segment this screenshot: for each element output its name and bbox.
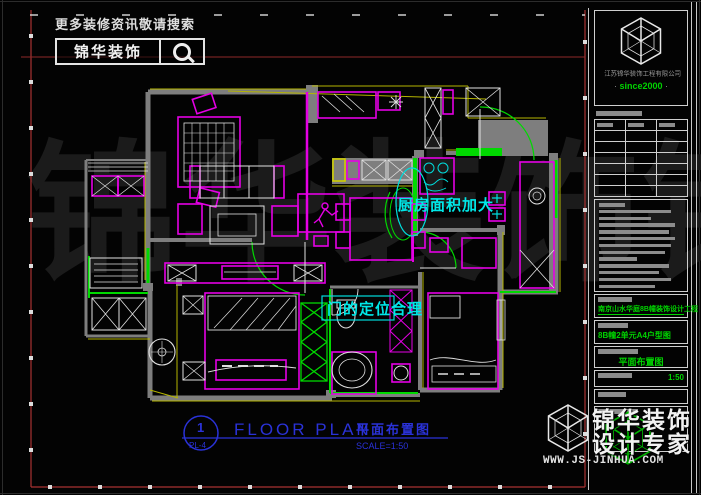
title-en: FLOOR PLAN bbox=[234, 420, 372, 439]
panel-edge-line bbox=[696, 2, 697, 493]
sofa-armrest bbox=[274, 166, 284, 198]
redacted-text-bar bbox=[599, 217, 651, 221]
bathtub bbox=[332, 352, 372, 388]
revision-cell bbox=[626, 142, 657, 153]
redacted-text-bar bbox=[599, 257, 637, 261]
dresser bbox=[183, 362, 205, 380]
redacted-text-bar bbox=[599, 285, 655, 289]
bed-bench bbox=[216, 360, 286, 380]
drawing-title: 1 PL-4 FLOOR PLAN 平面布置图 SCALE=1:50 bbox=[182, 416, 448, 451]
search-button[interactable] bbox=[161, 40, 203, 63]
ceiling-fan bbox=[389, 95, 403, 109]
redacted-text-bar bbox=[599, 264, 669, 268]
revision-cell bbox=[595, 164, 626, 175]
kitchen-sink bbox=[529, 188, 545, 204]
title-sheet: PL-4 bbox=[189, 441, 206, 450]
unit-field-box: 8B幢2单元A4户型图 bbox=[594, 320, 688, 344]
revision-cell bbox=[626, 131, 657, 142]
notes-box bbox=[594, 199, 688, 292]
master-bed bbox=[205, 293, 299, 389]
footer-brand: 锦华装饰 设计专家 bbox=[592, 409, 696, 457]
search-widget: 更多装修资讯敬请搜索 锦华装饰 bbox=[55, 14, 205, 65]
revision-cell bbox=[626, 164, 657, 175]
revision-cell bbox=[626, 175, 657, 186]
redacted-text-bar bbox=[599, 223, 675, 227]
radiator bbox=[90, 258, 142, 288]
redacted-text-bar bbox=[599, 251, 665, 255]
search-icon bbox=[173, 43, 191, 61]
tv-cabinet bbox=[165, 263, 325, 283]
revision-cell bbox=[657, 164, 688, 175]
company-since-badge: since2000 bbox=[619, 81, 662, 91]
revision-cell bbox=[657, 175, 688, 186]
company-cube-logo-icon bbox=[616, 16, 666, 66]
footer-brand-line1: 锦华装饰 bbox=[592, 409, 696, 433]
redacted-text-bar bbox=[599, 244, 671, 248]
redacted-text-bar bbox=[599, 210, 671, 214]
revision-cell bbox=[657, 186, 688, 197]
bath-sink bbox=[392, 364, 410, 382]
washing-machine bbox=[149, 339, 175, 365]
lounge-sofa bbox=[318, 92, 376, 118]
redacted-text-bar bbox=[599, 278, 671, 282]
company-logo-box: 江苏锦华装饰工程有限公司 · since2000 · bbox=[594, 10, 688, 106]
armchair bbox=[178, 204, 202, 234]
unit-name: 8B幢2单元A4户型图 bbox=[598, 330, 684, 341]
armchair bbox=[272, 206, 298, 236]
search-hint-label: 更多装修资讯敬请搜索 bbox=[55, 14, 205, 33]
project-field-box: 南京山水华庭8B幢装饰设计工程 bbox=[594, 294, 688, 318]
search-input-text[interactable]: 锦华装饰 bbox=[57, 40, 159, 63]
wardrobe-grid bbox=[301, 303, 327, 381]
revision-table bbox=[594, 119, 688, 197]
revision-cell bbox=[626, 186, 657, 197]
title-scale: SCALE=1:50 bbox=[356, 441, 408, 451]
title-cn: 平面布置图 bbox=[356, 422, 431, 437]
sink-bowl bbox=[394, 366, 408, 380]
project-name: 南京山水华庭8B幢装饰设计工程 bbox=[598, 304, 684, 315]
title-number: 1 bbox=[197, 420, 204, 435]
scale-field-box: 1:50 bbox=[594, 370, 688, 387]
redacted-text-bar bbox=[599, 203, 625, 207]
desk-grid bbox=[184, 123, 234, 181]
fridge-x bbox=[520, 250, 554, 288]
nightstand bbox=[183, 296, 203, 314]
stove bbox=[420, 158, 454, 194]
drawing-field-box: 平面布置图 bbox=[594, 346, 688, 368]
balcony-x-boxes bbox=[92, 176, 146, 330]
revision-cell bbox=[595, 142, 626, 153]
bedside-cabinet bbox=[462, 238, 496, 268]
empty-field-box bbox=[594, 389, 688, 404]
revision-cell bbox=[626, 120, 657, 131]
revision-cell bbox=[595, 153, 626, 164]
revision-cell bbox=[626, 153, 657, 164]
revision-cell bbox=[657, 131, 688, 142]
dot: · bbox=[614, 81, 617, 91]
study-desk bbox=[178, 117, 240, 187]
second-bed-details bbox=[430, 296, 496, 382]
dot: · bbox=[665, 81, 668, 91]
person-figure bbox=[314, 203, 338, 227]
desk-chair bbox=[192, 93, 216, 113]
redacted-text-bar bbox=[599, 230, 669, 234]
drawing-name: 平面布置图 bbox=[598, 355, 684, 368]
balcony-window bbox=[88, 163, 148, 171]
bath-closet-hatch bbox=[390, 290, 412, 352]
cad-sheet-canvas: 锦华装饰锦 bbox=[0, 0, 701, 495]
company-name: 江苏锦华装饰工程有限公司 bbox=[604, 69, 678, 78]
door-note-text: 门的定位合理 bbox=[327, 300, 423, 318]
search-box[interactable]: 锦华装饰 bbox=[55, 38, 205, 65]
revision-cell bbox=[595, 186, 626, 197]
revision-cell bbox=[657, 153, 688, 164]
footer-brand-line2: 设计专家 bbox=[592, 433, 696, 457]
revision-cell bbox=[595, 175, 626, 186]
revision-cell bbox=[595, 120, 626, 131]
footer-cube-icon bbox=[543, 403, 593, 453]
revision-cell bbox=[657, 120, 688, 131]
table-title-bar bbox=[596, 111, 642, 116]
revision-cell bbox=[657, 142, 688, 153]
redacted-text-bar bbox=[599, 271, 659, 275]
footer-url[interactable]: WWW.JS-JINHUA.COM bbox=[543, 455, 695, 467]
kitchen-note-text: 厨房面积加大 bbox=[398, 196, 494, 214]
revision-cell bbox=[595, 131, 626, 142]
redacted-text-bar bbox=[599, 237, 675, 241]
notes-redacted bbox=[599, 203, 683, 288]
